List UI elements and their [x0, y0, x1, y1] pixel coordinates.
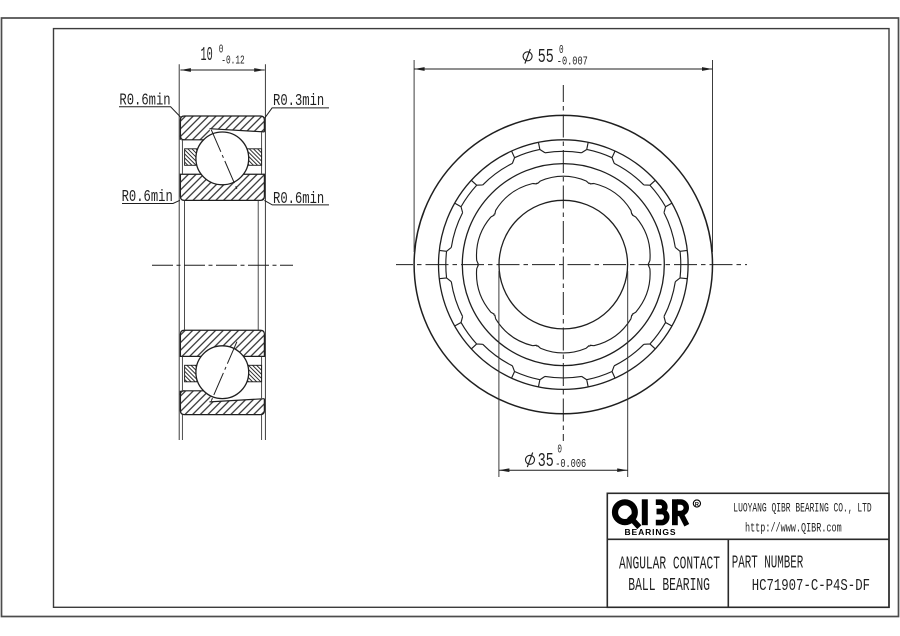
- svg-text:10: 10: [201, 44, 213, 66]
- svg-text:-0.007: -0.007: [557, 55, 588, 69]
- svg-text:http://www.QIBR.com: http://www.QIBR.com: [745, 521, 842, 536]
- svg-text:LUOYANG QIBR BEARING CO., LTD: LUOYANG QIBR BEARING CO., LTD: [733, 501, 872, 516]
- svg-text:R0.3min: R0.3min: [273, 91, 324, 110]
- svg-text:-0.12: -0.12: [221, 54, 244, 68]
- svg-text:0: 0: [557, 442, 562, 456]
- svg-text:ANGULAR CONTACT: ANGULAR CONTACT: [619, 554, 720, 574]
- svg-text:55: 55: [538, 46, 554, 68]
- svg-text:-0.006: -0.006: [555, 457, 586, 471]
- svg-text:BALL BEARING: BALL BEARING: [628, 576, 710, 596]
- svg-text:BEARINGS: BEARINGS: [625, 527, 677, 537]
- svg-text:PART NUMBER: PART NUMBER: [732, 553, 804, 573]
- svg-text:HC71907-C-P4S-DF: HC71907-C-P4S-DF: [752, 577, 870, 596]
- svg-text:35: 35: [538, 450, 554, 472]
- svg-text:R: R: [695, 502, 699, 508]
